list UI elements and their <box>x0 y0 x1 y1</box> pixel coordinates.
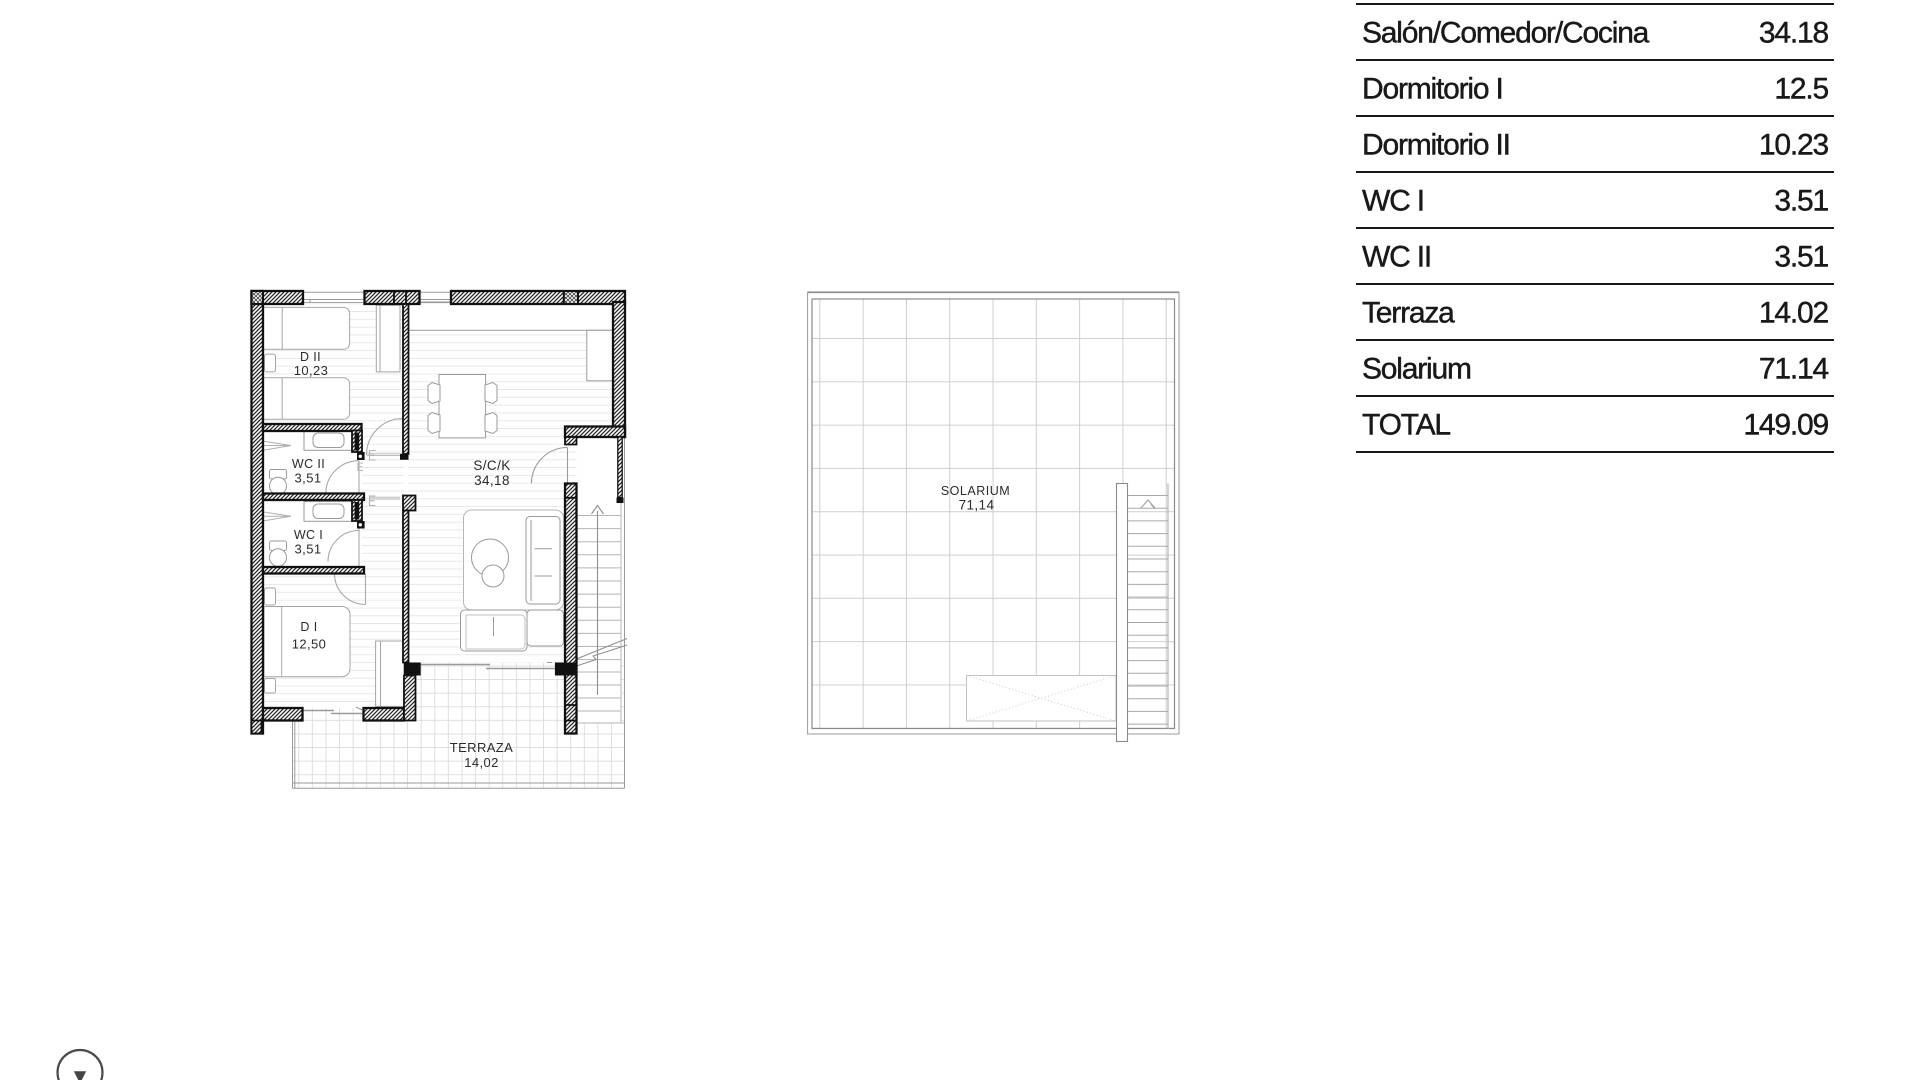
svg-text:12,50: 12,50 <box>292 637 327 652</box>
svg-text:10.23: 10.23 <box>1759 129 1829 162</box>
svg-text:WC II: WC II <box>1362 241 1431 274</box>
svg-text:34,18: 34,18 <box>474 473 510 488</box>
svg-text:WC II: WC II <box>292 457 325 471</box>
svg-text:3,51: 3,51 <box>295 542 322 557</box>
svg-text:Salón/Comedor/Cocina: Salón/Comedor/Cocina <box>1362 17 1650 50</box>
svg-text:3.51: 3.51 <box>1774 241 1828 274</box>
svg-text:3,51: 3,51 <box>295 471 322 486</box>
svg-text:WC I: WC I <box>1362 185 1424 218</box>
svg-text:Solarium: Solarium <box>1362 353 1471 386</box>
svg-text:34.18: 34.18 <box>1759 17 1829 50</box>
svg-text:10,23: 10,23 <box>294 363 329 378</box>
svg-text:TERRAZA: TERRAZA <box>450 740 513 755</box>
svg-text:14,02: 14,02 <box>464 755 499 770</box>
svg-text:S/C/K: S/C/K <box>473 458 510 473</box>
svg-text:D II: D II <box>300 350 321 364</box>
svg-text:D I: D I <box>300 620 317 634</box>
svg-text:WC I: WC I <box>294 528 323 542</box>
svg-text:TOTAL: TOTAL <box>1362 409 1450 442</box>
svg-text:14.02: 14.02 <box>1759 297 1829 330</box>
svg-text:71.14: 71.14 <box>1759 353 1829 386</box>
svg-text:12.5: 12.5 <box>1774 73 1828 106</box>
svg-text:SOLARIUM: SOLARIUM <box>941 484 1010 498</box>
svg-text:149.09: 149.09 <box>1743 409 1828 442</box>
svg-text:71,14: 71,14 <box>959 498 995 513</box>
svg-text:Terraza: Terraza <box>1362 297 1455 330</box>
svg-text:Dormitorio II: Dormitorio II <box>1362 129 1510 162</box>
svg-text:Dormitorio I: Dormitorio I <box>1362 73 1503 106</box>
svg-text:3.51: 3.51 <box>1774 185 1828 218</box>
